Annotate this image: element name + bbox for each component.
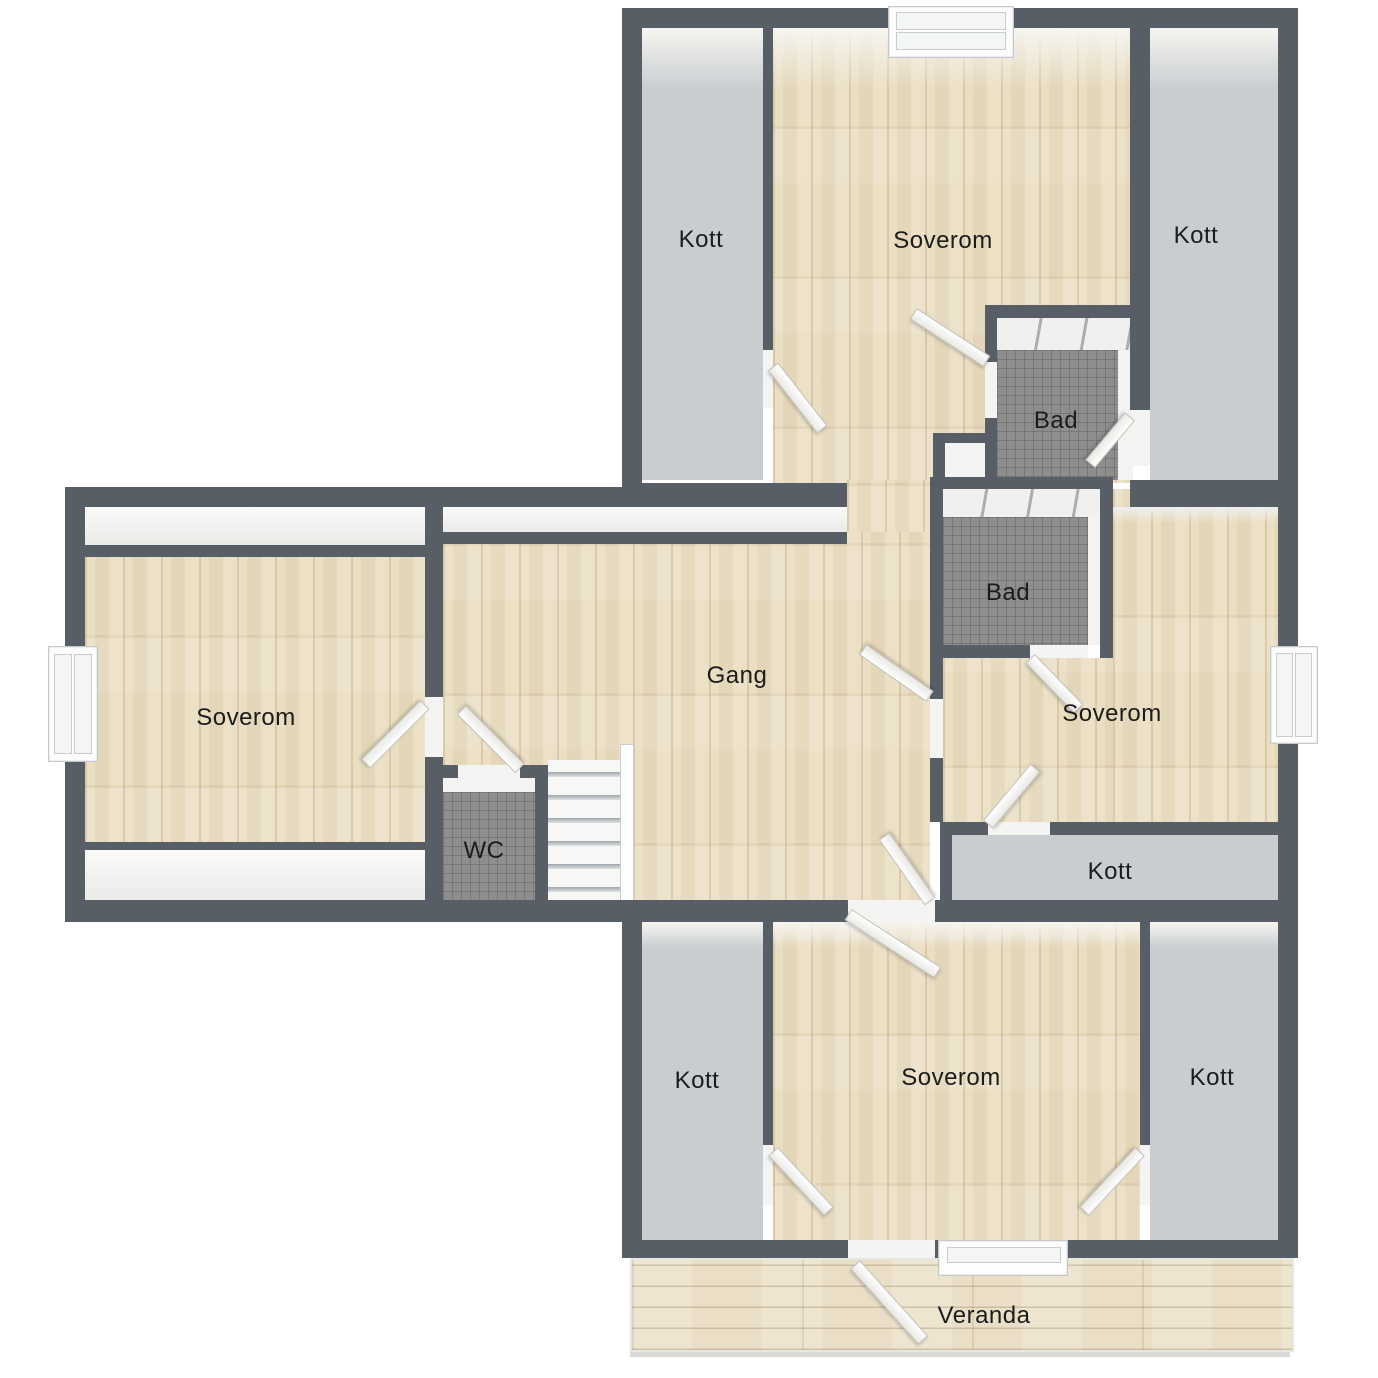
wall <box>622 8 890 28</box>
wall <box>952 822 988 835</box>
wall <box>1278 740 1298 1258</box>
wall <box>622 8 642 507</box>
wall <box>940 822 952 900</box>
knee-storage-strip <box>85 507 425 545</box>
wall <box>65 900 848 922</box>
wall <box>930 477 1113 489</box>
wall <box>425 757 443 900</box>
door-sill <box>988 822 1050 835</box>
wall <box>622 900 642 1258</box>
wall <box>642 483 847 507</box>
room-kott-top-left <box>642 28 763 480</box>
stair-railing <box>620 744 634 902</box>
wall <box>763 922 773 1145</box>
door-sill <box>425 697 443 757</box>
wall <box>65 758 85 922</box>
window-pane <box>896 12 1006 30</box>
staircase <box>548 760 634 900</box>
window-north <box>888 6 1014 58</box>
wall <box>1130 480 1278 507</box>
wall <box>535 765 548 900</box>
wall <box>1100 477 1113 658</box>
room-label-bad-top: Bad <box>1034 407 1078 435</box>
bad-mid-tiled-wall <box>943 487 1100 517</box>
door-sill <box>763 350 773 408</box>
wall <box>985 418 997 480</box>
wall <box>85 842 425 850</box>
window-pane <box>947 1247 1061 1263</box>
room-label-soverom-top: Soverom <box>893 227 993 255</box>
wall <box>622 1240 848 1258</box>
room-label-gang: Gang <box>707 662 768 690</box>
wall <box>985 305 1133 318</box>
wall <box>933 433 997 443</box>
wall <box>1130 26 1150 410</box>
window-pane <box>896 32 1006 50</box>
room-label-soverom-right: Soverom <box>1062 700 1162 728</box>
window-pane <box>1295 653 1312 737</box>
door-sill <box>1030 645 1088 658</box>
door-sill <box>985 362 997 418</box>
room-label-soverom-left: Soverom <box>196 704 296 732</box>
window-east <box>1270 646 1318 744</box>
room-soverom-left <box>85 557 425 842</box>
room-label-kott-mid-right: Kott <box>1088 858 1133 886</box>
room-label-kott-top-right: Kott <box>1174 222 1219 250</box>
door-sill <box>848 1240 935 1258</box>
wall <box>65 487 85 648</box>
door-sill <box>930 699 943 758</box>
stair-tread <box>548 772 620 777</box>
wall <box>935 900 1298 922</box>
wall <box>1278 8 1298 648</box>
veranda-edge <box>630 1352 1290 1357</box>
knee-storage-strip <box>85 850 425 900</box>
room-label-kott-top-left: Kott <box>679 226 724 254</box>
room-soverom-right <box>1113 489 1278 822</box>
bad-top-tiled-wall <box>997 318 1133 350</box>
wall <box>943 645 1030 658</box>
wall <box>930 487 943 699</box>
knee-storage-strip <box>443 507 847 532</box>
wall <box>1063 1240 1298 1258</box>
room-kott-top-right <box>1150 28 1278 480</box>
window-south <box>938 1240 1068 1276</box>
window-pane <box>54 654 72 754</box>
wall <box>1010 8 1298 28</box>
wall-face <box>1113 507 1278 521</box>
bad-mid-wall-face <box>1088 517 1100 645</box>
stair-tread <box>548 864 620 869</box>
room-label-soverom-bottom: Soverom <box>901 1064 1001 1092</box>
wall <box>443 532 847 544</box>
wall <box>1140 922 1150 1145</box>
window-pane <box>1276 653 1293 737</box>
room-label-kott-bottom-right: Kott <box>1190 1064 1235 1092</box>
window-west <box>48 646 98 762</box>
stair-tread <box>548 795 620 800</box>
stair-tread <box>548 818 620 823</box>
wall <box>425 507 443 697</box>
passage-soverom-gang <box>847 480 930 540</box>
room-label-veranda: Veranda <box>938 1302 1031 1330</box>
window-pane <box>74 654 92 754</box>
wall <box>930 758 943 822</box>
room-label-bad-mid: Bad <box>986 579 1030 607</box>
room-soverom-right <box>943 658 1113 822</box>
wall <box>443 765 458 778</box>
floorplan: Kott Soverom Kott Bad Bad Soverom Gang S… <box>0 0 1378 1378</box>
room-label-wc: WC <box>464 837 505 865</box>
wall <box>763 26 773 350</box>
wall <box>65 487 642 507</box>
stair-tread <box>548 841 620 846</box>
stair-tread <box>548 887 620 892</box>
wall <box>85 545 443 557</box>
wall <box>1050 822 1278 835</box>
wall-face <box>642 922 1278 948</box>
room-label-kott-bottom-left: Kott <box>675 1067 720 1095</box>
